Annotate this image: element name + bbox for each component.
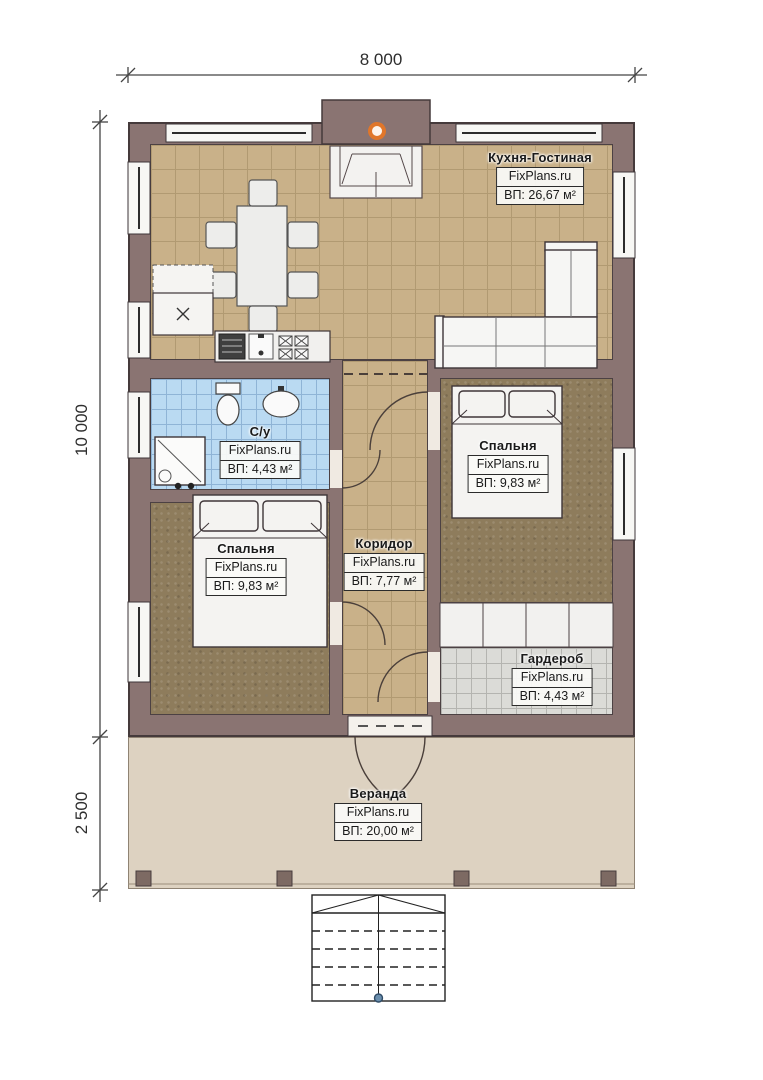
- room-info-box: FixPlans.ru ВП: 20,00 м²: [334, 803, 422, 841]
- brand-text: FixPlans.ru: [497, 168, 583, 187]
- window-left-kitchen-2: [128, 302, 150, 358]
- chimney-flue-icon: [370, 124, 384, 138]
- room-label-bedroom-left: Спальня FixPlans.ru ВП: 9,83 м²: [206, 541, 287, 596]
- chair: [288, 272, 318, 298]
- room-info-box: FixPlans.ru ВП: 4,43 м²: [512, 668, 593, 706]
- room-info-box: FixPlans.ru ВП: 26,67 м²: [496, 167, 584, 205]
- pillow: [263, 501, 321, 531]
- dining-set: [206, 180, 318, 332]
- dishwasher-icon: [219, 334, 245, 359]
- room-info-box: FixPlans.ru ВП: 9,83 м²: [468, 455, 549, 493]
- chair: [249, 180, 277, 206]
- kitchen-counter: [215, 331, 330, 362]
- door-swing-bedroom-left: [342, 602, 385, 645]
- room-label-kitchen-living: Кухня-Гостиная FixPlans.ru ВП: 26,67 м²: [488, 150, 592, 205]
- window-top-left: [166, 124, 312, 142]
- pillow: [200, 501, 258, 531]
- room-name: Кухня-Гостиная: [488, 150, 592, 165]
- area-text: ВП: 4,43 м²: [221, 461, 300, 479]
- entrance-stairs: [312, 895, 445, 1002]
- room-info-box: FixPlans.ru ВП: 7,77 м²: [344, 553, 425, 591]
- window-right-living: [613, 172, 635, 258]
- room-name: Спальня: [206, 541, 287, 556]
- floor-plan: Кухня-Гостиная FixPlans.ru ВП: 26,67 м² …: [0, 0, 763, 1080]
- room-label-bedroom-right: Спальня FixPlans.ru ВП: 9,83 м²: [468, 438, 549, 493]
- brand-text: FixPlans.ru: [221, 442, 300, 461]
- door-swing-bathroom: [342, 450, 380, 488]
- door-swing-bedroom-right: [370, 392, 428, 450]
- door-opening-wardrobe: [428, 652, 440, 702]
- window-left-bathroom: [128, 392, 150, 458]
- washbasin-icon: [263, 386, 299, 417]
- kitchen-sink-icon: [249, 334, 273, 359]
- brand-text: FixPlans.ru: [469, 456, 548, 475]
- chair: [249, 306, 277, 332]
- brand-text: FixPlans.ru: [207, 559, 286, 578]
- room-name: Коридор: [344, 536, 425, 551]
- area-text: ВП: 9,83 м²: [469, 475, 548, 493]
- chair: [288, 222, 318, 248]
- stairs-direction-dot: [375, 994, 383, 1002]
- fireplace: [322, 100, 430, 198]
- pillow: [509, 391, 555, 417]
- chair: [206, 222, 236, 248]
- area-text: ВП: 20,00 м²: [335, 823, 421, 841]
- dimension-width-total: 8 000: [360, 50, 403, 70]
- dimension-left-line: [92, 110, 108, 902]
- room-name: Спальня: [468, 438, 549, 453]
- dimension-depth-veranda: 2 500: [72, 792, 92, 835]
- wardrobe-cabinets: [440, 603, 613, 647]
- brand-text: FixPlans.ru: [513, 669, 592, 688]
- door-opening-bathroom: [330, 450, 342, 488]
- shower-icon: [155, 437, 205, 489]
- veranda-posts: [128, 871, 635, 886]
- room-name: Гардероб: [512, 651, 593, 666]
- area-text: ВП: 4,43 м²: [513, 688, 592, 706]
- area-text: ВП: 7,77 м²: [345, 573, 424, 591]
- room-name: Веранда: [334, 786, 422, 801]
- dining-table: [237, 206, 287, 306]
- window-right-bedroom: [613, 448, 635, 540]
- brand-text: FixPlans.ru: [345, 554, 424, 573]
- room-label-bathroom: С/у FixPlans.ru ВП: 4,43 м²: [220, 424, 301, 479]
- fridge: [153, 265, 213, 335]
- door-swing-wardrobe: [378, 652, 428, 702]
- room-label-corridor: Коридор FixPlans.ru ВП: 7,77 м²: [344, 536, 425, 591]
- window-left-bedroom: [128, 602, 150, 682]
- brand-text: FixPlans.ru: [335, 804, 421, 823]
- room-label-wardrobe: Гардероб FixPlans.ru ВП: 4,43 м²: [512, 651, 593, 706]
- door-opening-bedroom-left: [330, 602, 342, 645]
- area-text: ВП: 26,67 м²: [497, 187, 583, 205]
- room-info-box: FixPlans.ru ВП: 9,83 м²: [206, 558, 287, 596]
- room-info-box: FixPlans.ru ВП: 4,43 м²: [220, 441, 301, 479]
- door-opening-bedroom-right: [428, 392, 440, 450]
- window-top-right: [456, 124, 602, 142]
- window-left-kitchen: [128, 162, 150, 234]
- toilet-icon: [216, 383, 240, 425]
- pillow: [459, 391, 505, 417]
- room-name: С/у: [220, 424, 301, 439]
- corner-sofa: [435, 242, 597, 368]
- room-label-veranda: Веранда FixPlans.ru ВП: 20,00 м²: [334, 786, 422, 841]
- area-text: ВП: 9,83 м²: [207, 578, 286, 596]
- dimension-depth-main: 10 000: [72, 404, 92, 456]
